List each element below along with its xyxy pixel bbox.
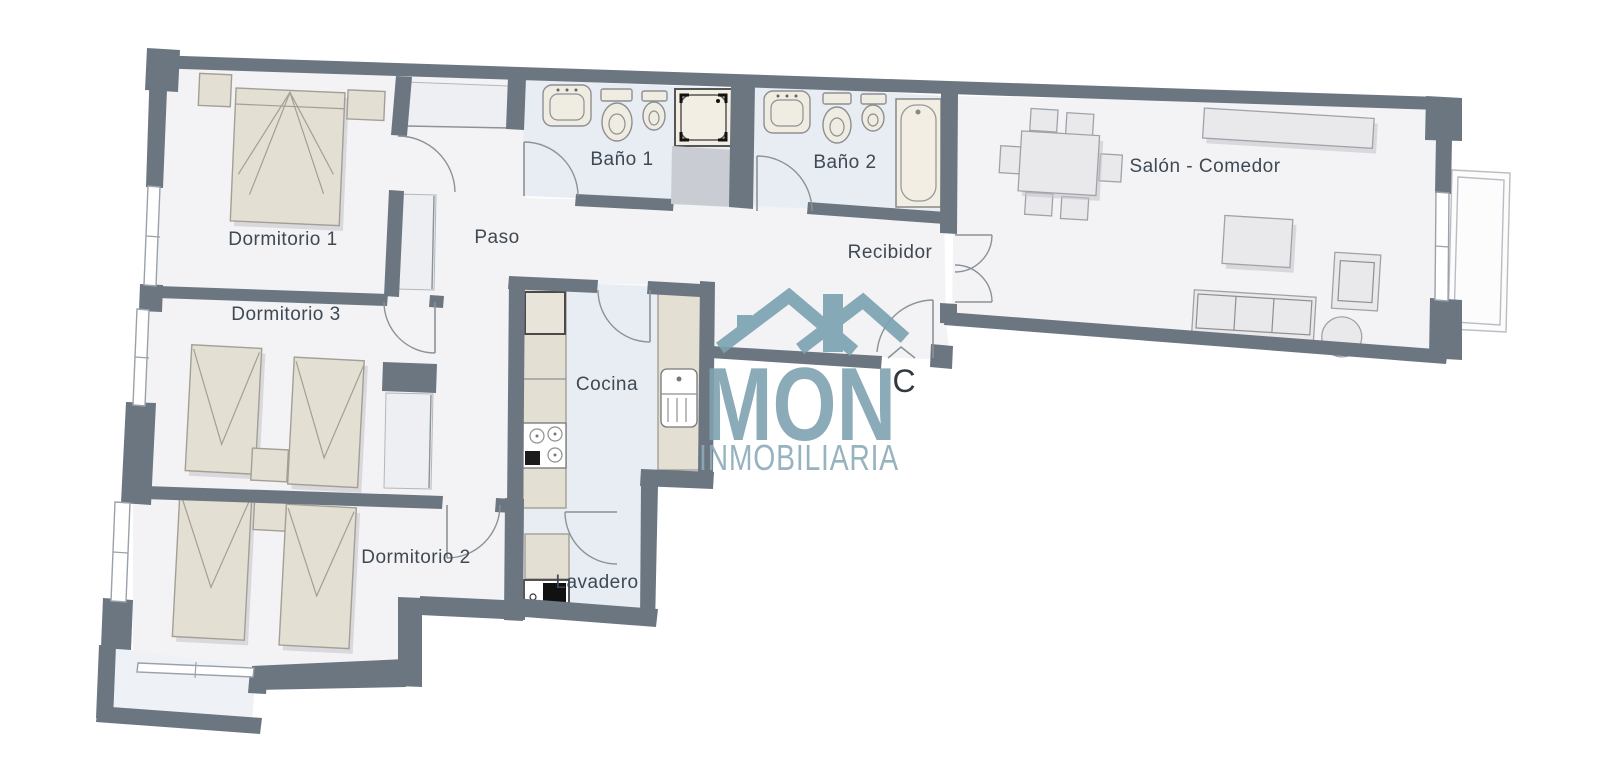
- toilet: [601, 89, 632, 101]
- bidet: [642, 91, 667, 101]
- coffee-table: [1222, 215, 1293, 267]
- nightstand: [347, 90, 385, 121]
- label-paso: Paso: [474, 227, 519, 248]
- label-cocina: Cocina: [576, 374, 638, 395]
- label-dormitorio-1: Dormitorio 1: [228, 229, 337, 250]
- fridge: [525, 292, 565, 334]
- label-lavadero: Lavadero: [555, 572, 638, 593]
- nightstand: [251, 448, 289, 482]
- label-dormitorio-3: Dormitorio 3: [231, 304, 340, 325]
- label-recibidor: Recibidor: [848, 242, 933, 263]
- nightstand: [198, 73, 231, 106]
- dining-table: [1018, 131, 1100, 196]
- label-dormitorio-2: Dormitorio 2: [361, 547, 470, 568]
- dining-chair: [1030, 108, 1058, 132]
- wardrobe-paso: [405, 82, 510, 128]
- bidet: [861, 94, 886, 104]
- label-bano-1: Baño 1: [590, 149, 653, 170]
- dining-chair: [1060, 196, 1088, 220]
- double-bed: [230, 88, 345, 226]
- bathtub: [896, 99, 941, 207]
- label-bano-2: Baño 2: [813, 152, 876, 173]
- single-bed: [172, 493, 251, 641]
- floorplan-drawing: Dormitorio 1 Dormitorio 3 Dormitorio 2 P…: [0, 0, 1600, 765]
- watermark-tagline: INMOBILIARIA: [699, 437, 899, 478]
- dining-chair: [1099, 154, 1123, 182]
- entrance-label: C: [892, 363, 915, 399]
- dining-chair: [1066, 113, 1094, 137]
- chimney-icon: [737, 315, 752, 332]
- single-bed: [185, 345, 261, 474]
- closet-dormitorio-3: [384, 393, 433, 489]
- house-body-icon: [823, 294, 843, 352]
- toilet: [823, 93, 851, 104]
- single-bed: [288, 357, 365, 487]
- label-salon-comedor: Salón - Comedor: [1129, 156, 1280, 177]
- single-bed: [279, 504, 356, 648]
- floorplan-page: Dormitorio 1 Dormitorio 3 Dormitorio 2 P…: [0, 0, 1600, 765]
